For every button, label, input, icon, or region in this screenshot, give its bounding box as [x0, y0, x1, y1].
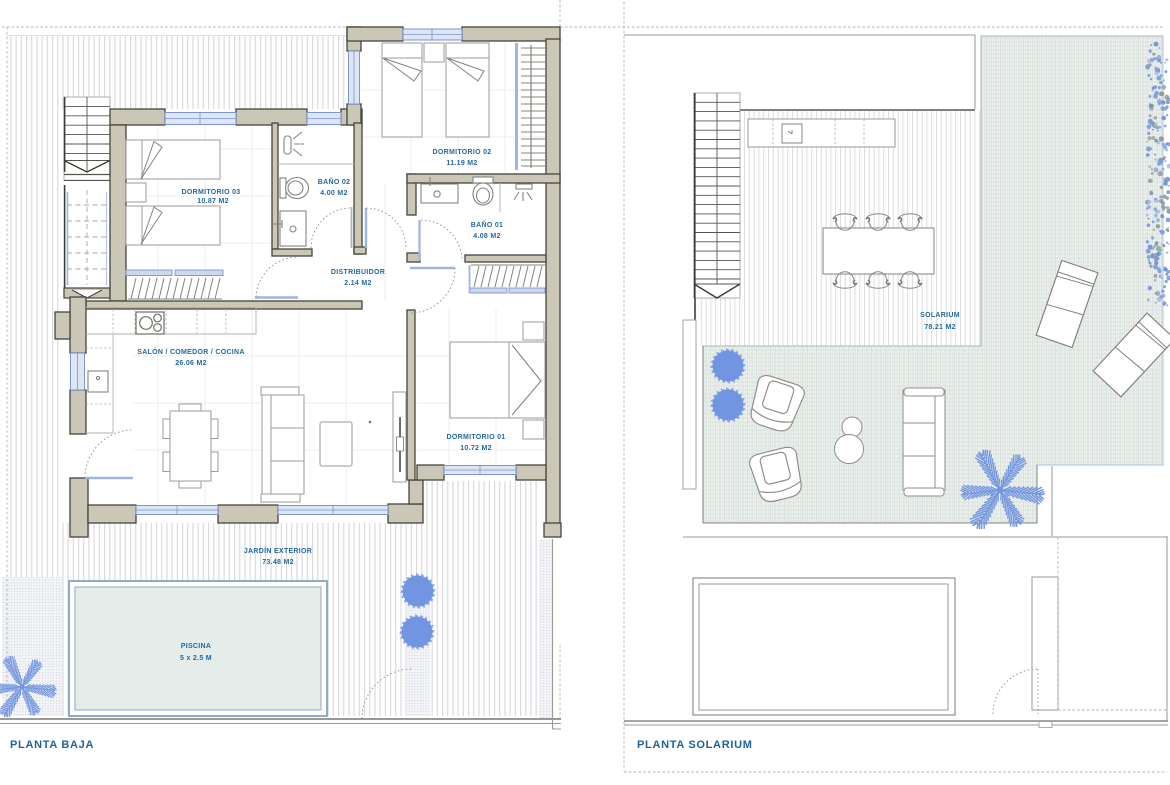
svg-text:2.14 M2: 2.14 M2 — [344, 280, 371, 287]
svg-text:78.21 M2: 78.21 M2 — [924, 324, 956, 331]
svg-text:11.19 M2: 11.19 M2 — [446, 160, 477, 167]
svg-text:DORMITORIO 01: DORMITORIO 01 — [446, 434, 505, 441]
svg-text:JARDÍN EXTERIOR: JARDÍN EXTERIOR — [244, 546, 312, 555]
svg-text:PISCINA: PISCINA — [181, 643, 212, 650]
svg-text:5 x 2.5 M: 5 x 2.5 M — [180, 655, 212, 662]
svg-text:10.87 M2: 10.87 M2 — [197, 198, 229, 205]
svg-text:DORMITORIO 02: DORMITORIO 02 — [432, 149, 491, 156]
svg-text:DISTRIBUIDOR: DISTRIBUIDOR — [331, 269, 385, 276]
svg-text:SOLARIUM: SOLARIUM — [920, 312, 960, 319]
svg-text:BAÑO 01: BAÑO 01 — [471, 220, 503, 229]
svg-text:26.06 M2: 26.06 M2 — [175, 360, 207, 367]
svg-text:PLANTA SOLARIUM: PLANTA SOLARIUM — [637, 739, 753, 751]
svg-text:4.00 M2: 4.00 M2 — [320, 190, 347, 197]
svg-text:PLANTA BAJA: PLANTA BAJA — [10, 739, 94, 751]
svg-text:DORMITORIO 03: DORMITORIO 03 — [181, 189, 240, 196]
svg-text:BAÑO 02: BAÑO 02 — [318, 177, 350, 186]
svg-text:10.72 M2: 10.72 M2 — [460, 445, 492, 452]
svg-text:73.48 M2: 73.48 M2 — [262, 559, 294, 566]
svg-text:SALÓN / COMEDOR / COCINA: SALÓN / COMEDOR / COCINA — [137, 347, 245, 356]
svg-text:4.08 M2: 4.08 M2 — [473, 233, 500, 240]
